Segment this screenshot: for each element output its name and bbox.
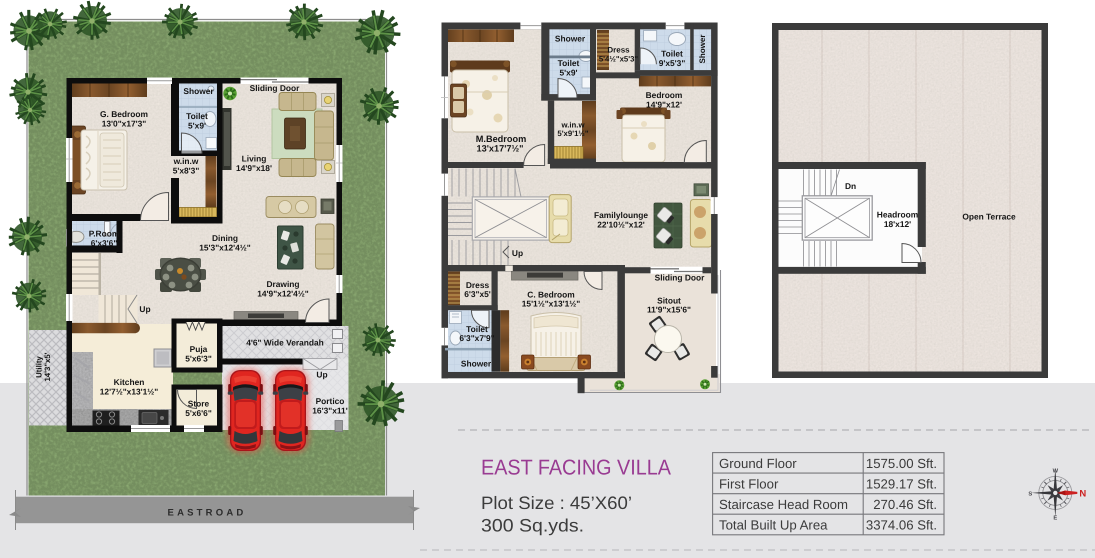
svg-text:5'x9'1½": 5'x9'1½" bbox=[557, 129, 589, 138]
svg-text:Kitchen: Kitchen bbox=[114, 377, 145, 387]
svg-text:Ground Floor: Ground Floor bbox=[719, 456, 797, 471]
svg-text:5'x6'6": 5'x6'6" bbox=[185, 408, 212, 418]
svg-text:Total Built Up Area: Total Built Up Area bbox=[719, 518, 828, 533]
svg-text:300 Sq.yds.: 300 Sq.yds. bbox=[481, 516, 584, 536]
svg-text:Headroom: Headroom bbox=[877, 210, 918, 220]
svg-text:11'9"x15'6": 11'9"x15'6" bbox=[647, 305, 691, 315]
svg-text:18'x12': 18'x12' bbox=[884, 219, 911, 229]
svg-text:W: W bbox=[1053, 468, 1059, 474]
svg-text:9'x5'3": 9'x5'3" bbox=[659, 58, 686, 68]
svg-text:Toilet: Toilet bbox=[661, 49, 683, 59]
svg-text:Up: Up bbox=[512, 248, 523, 258]
svg-text:Bedroom: Bedroom bbox=[646, 90, 683, 100]
svg-text:Up: Up bbox=[139, 304, 150, 314]
svg-text:14'9"x12'4½": 14'9"x12'4½" bbox=[257, 289, 309, 299]
svg-text:N: N bbox=[1079, 488, 1086, 499]
svg-text:Living: Living bbox=[242, 154, 267, 164]
svg-text:Puja: Puja bbox=[190, 344, 208, 354]
svg-text:6'3"x5': 6'3"x5' bbox=[464, 289, 491, 299]
svg-text:270.46 Sft.: 270.46 Sft. bbox=[873, 497, 937, 512]
svg-text:Portico: Portico bbox=[316, 396, 345, 406]
svg-text:5'x8'3": 5'x8'3" bbox=[173, 166, 200, 176]
svg-text:6'x3'6": 6'x3'6" bbox=[91, 238, 118, 248]
svg-text:12'7½"x13'1½": 12'7½"x13'1½" bbox=[100, 387, 159, 397]
svg-text:Toilet: Toilet bbox=[186, 111, 208, 121]
svg-text:5'4½"x5'3": 5'4½"x5'3" bbox=[599, 55, 639, 64]
svg-text:EAST FACING VILLA: EAST FACING VILLA bbox=[481, 456, 672, 480]
svg-text:5'x6'3": 5'x6'3" bbox=[185, 354, 212, 364]
svg-text:Sliding Door: Sliding Door bbox=[250, 83, 301, 93]
svg-text:First Floor: First Floor bbox=[719, 477, 779, 492]
svg-text:Toilet: Toilet bbox=[558, 58, 580, 68]
svg-text:P.Room: P.Room bbox=[89, 229, 120, 239]
svg-text:M.Bedroom: M.Bedroom bbox=[476, 134, 527, 144]
svg-text:Up: Up bbox=[316, 370, 327, 380]
svg-text:Utility14'3"x5': Utility14'3"x5' bbox=[35, 352, 53, 381]
svg-text:Dn: Dn bbox=[845, 181, 856, 191]
svg-text:Dining: Dining bbox=[212, 233, 238, 243]
svg-text:Shower: Shower bbox=[555, 34, 586, 44]
svg-text:22'10½"x12': 22'10½"x12' bbox=[597, 220, 645, 230]
svg-text:14'9"x18': 14'9"x18' bbox=[236, 163, 272, 173]
svg-text:Plot Size : 45’X60’: Plot Size : 45’X60’ bbox=[481, 493, 632, 513]
svg-text:6'3"x7'9": 6'3"x7'9" bbox=[459, 333, 494, 343]
svg-text:3374.06 Sft.: 3374.06 Sft. bbox=[866, 518, 937, 533]
svg-text:w.in.w: w.in.w bbox=[173, 156, 199, 166]
svg-text:1575.00 Sft.: 1575.00 Sft. bbox=[866, 456, 937, 471]
svg-text:Drawing: Drawing bbox=[266, 279, 299, 289]
svg-text:5'x9': 5'x9' bbox=[188, 121, 206, 131]
svg-text:14'9"x12': 14'9"x12' bbox=[646, 100, 682, 110]
svg-text:Open Terrace: Open Terrace bbox=[962, 212, 1016, 222]
svg-text:15'1½"x13'1½": 15'1½"x13'1½" bbox=[522, 299, 581, 309]
svg-text:13'0"x17'3": 13'0"x17'3" bbox=[102, 119, 147, 129]
svg-text:Sliding Door: Sliding Door bbox=[655, 273, 706, 283]
svg-text:Staircase Head Room: Staircase Head Room bbox=[719, 497, 848, 512]
svg-text:Shower: Shower bbox=[461, 359, 492, 369]
svg-text:Familylounge: Familylounge bbox=[594, 210, 648, 220]
svg-text:EASTROAD: EASTROAD bbox=[168, 508, 247, 519]
svg-text:G. Bedroom: G. Bedroom bbox=[100, 109, 148, 119]
svg-text:4'6" Wide Verandah: 4'6" Wide Verandah bbox=[246, 338, 324, 348]
svg-text:13'x17'7½": 13'x17'7½" bbox=[476, 144, 523, 154]
svg-text:Shower: Shower bbox=[698, 35, 707, 64]
svg-text:E: E bbox=[1053, 515, 1057, 521]
svg-text:5'x9': 5'x9' bbox=[560, 68, 578, 78]
svg-text:Store: Store bbox=[188, 399, 210, 409]
svg-text:16'3"x11': 16'3"x11' bbox=[312, 406, 347, 416]
svg-text:Dress: Dress bbox=[607, 46, 630, 55]
svg-text:S: S bbox=[1028, 491, 1032, 498]
svg-text:15'3"x12'4½": 15'3"x12'4½" bbox=[199, 243, 251, 253]
svg-text:Shower: Shower bbox=[183, 86, 214, 96]
svg-text:1529.17 Sft.: 1529.17 Sft. bbox=[866, 477, 937, 492]
